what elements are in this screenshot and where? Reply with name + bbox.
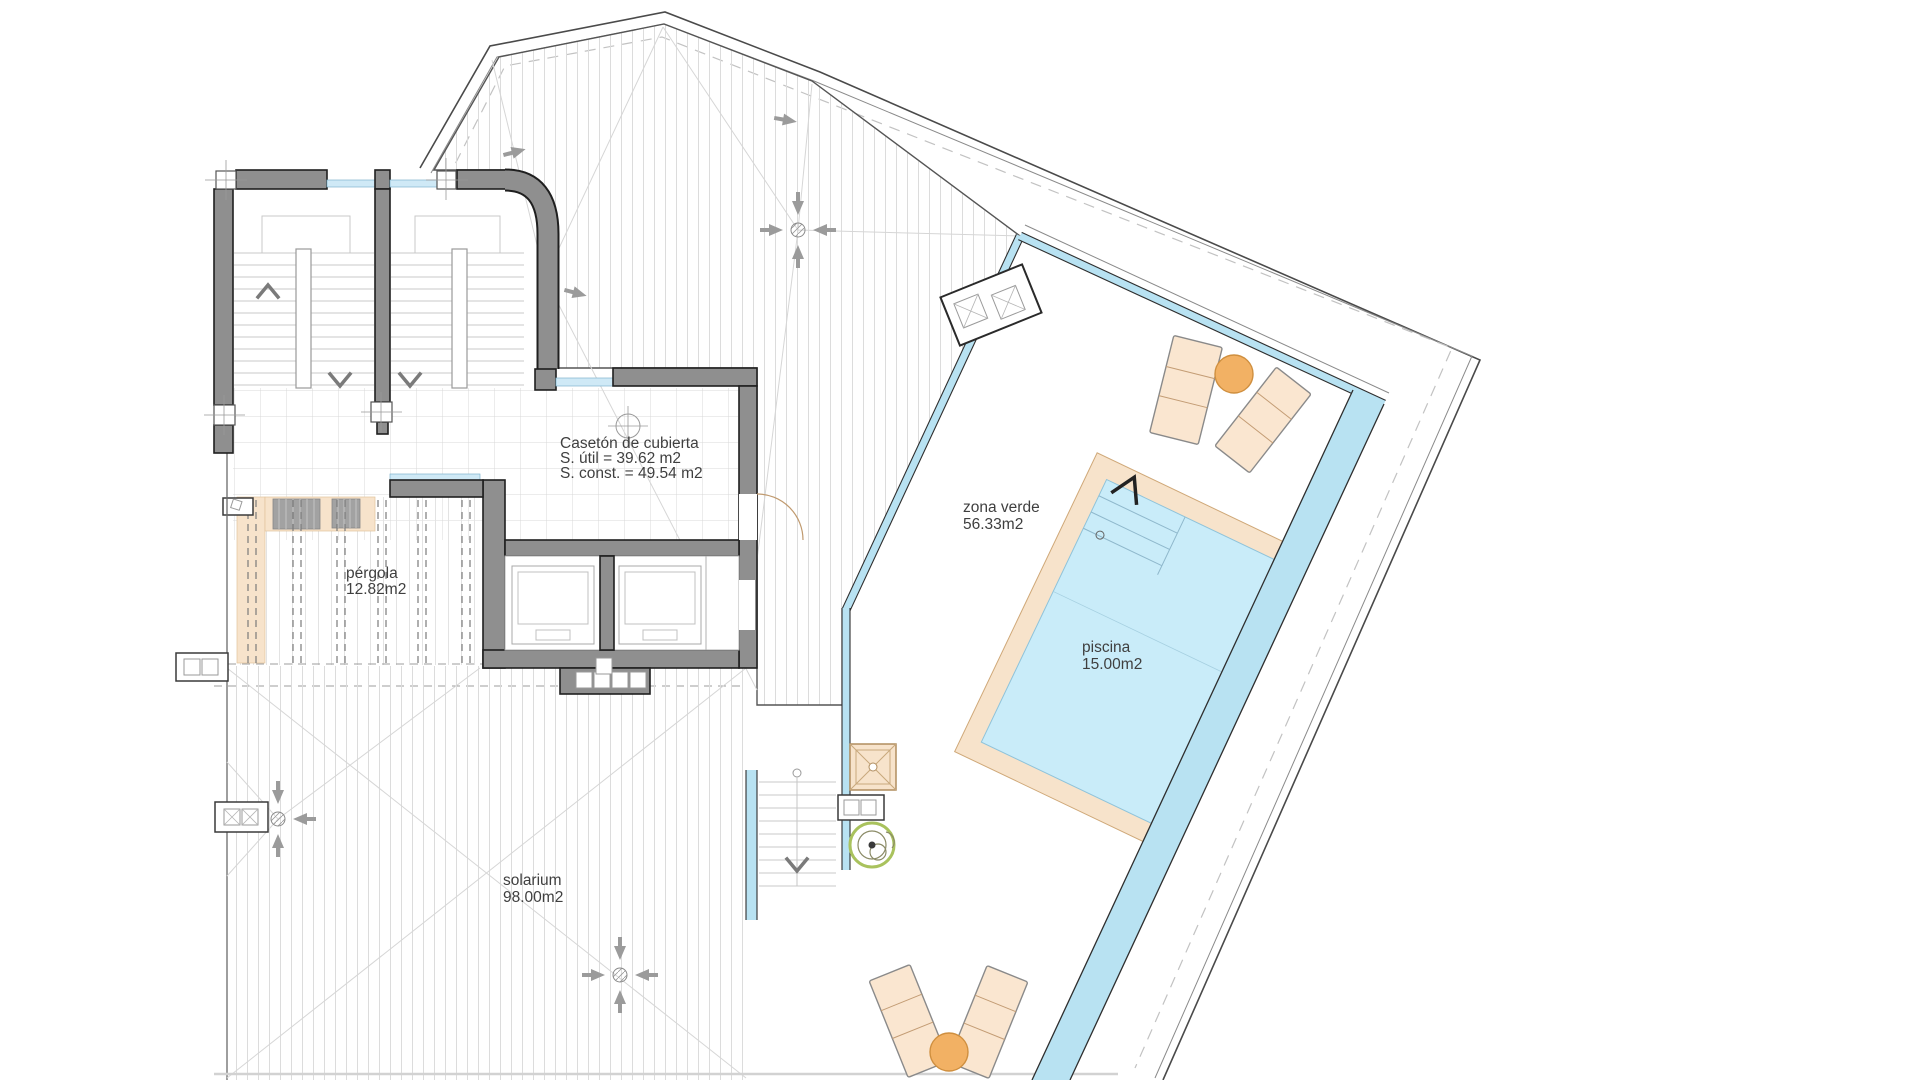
pergola-louvre-slats (273, 499, 360, 529)
stair-up-chevron (258, 285, 278, 297)
side-table-2 (930, 1033, 968, 1071)
pergola-label: pérgola 12.82m2 (346, 565, 406, 598)
sun-lounger-1 (1150, 335, 1223, 444)
pergola-label-area: 12.82m2 (346, 581, 406, 598)
zona-verde-label-name: zona verde (963, 499, 1040, 516)
equipment-unit (619, 566, 701, 644)
stairs-down (759, 769, 836, 886)
window-strip (327, 180, 375, 187)
solarium-bench (215, 802, 268, 832)
shower-tray (850, 744, 896, 790)
solarium-drain-2 (613, 968, 627, 982)
piscina-label-area: 15.00m2 (1082, 656, 1142, 673)
window-strip (556, 378, 613, 386)
solarium-label: solarium 98.00m2 (503, 872, 563, 906)
solarium-label-name: solarium (503, 872, 562, 889)
roof-drain (791, 223, 805, 237)
side-table-1 (1215, 355, 1253, 393)
stairs-up-right (391, 216, 524, 388)
solarium-drain-1 (271, 812, 285, 826)
stairs-up-left (234, 216, 374, 388)
caseton-label-const: S. const. = 49.54 m2 (560, 465, 703, 482)
equipment-unit (512, 566, 594, 644)
piscina-label-name: piscina (1082, 639, 1131, 656)
floor-plan-page: Casetón de cubierta S. útil = 39.62 m2 S… (0, 0, 1920, 1080)
stair-down-chevron (400, 374, 420, 386)
terrace-bench (838, 795, 884, 820)
wall-bench (176, 653, 228, 681)
solarium-label-area: 98.00m2 (503, 889, 563, 906)
wall-opening (739, 580, 755, 630)
stair-down-chevron (330, 374, 350, 386)
zona-verde-label: zona verde 56.33m2 (963, 499, 1040, 533)
floor-plan: Casetón de cubierta S. útil = 39.62 m2 S… (0, 0, 1920, 1080)
window-strip (390, 180, 437, 187)
pergola-label-name: pérgola (346, 565, 398, 582)
potted-plant (850, 823, 894, 867)
zona-verde-label-area: 56.33m2 (963, 516, 1023, 533)
